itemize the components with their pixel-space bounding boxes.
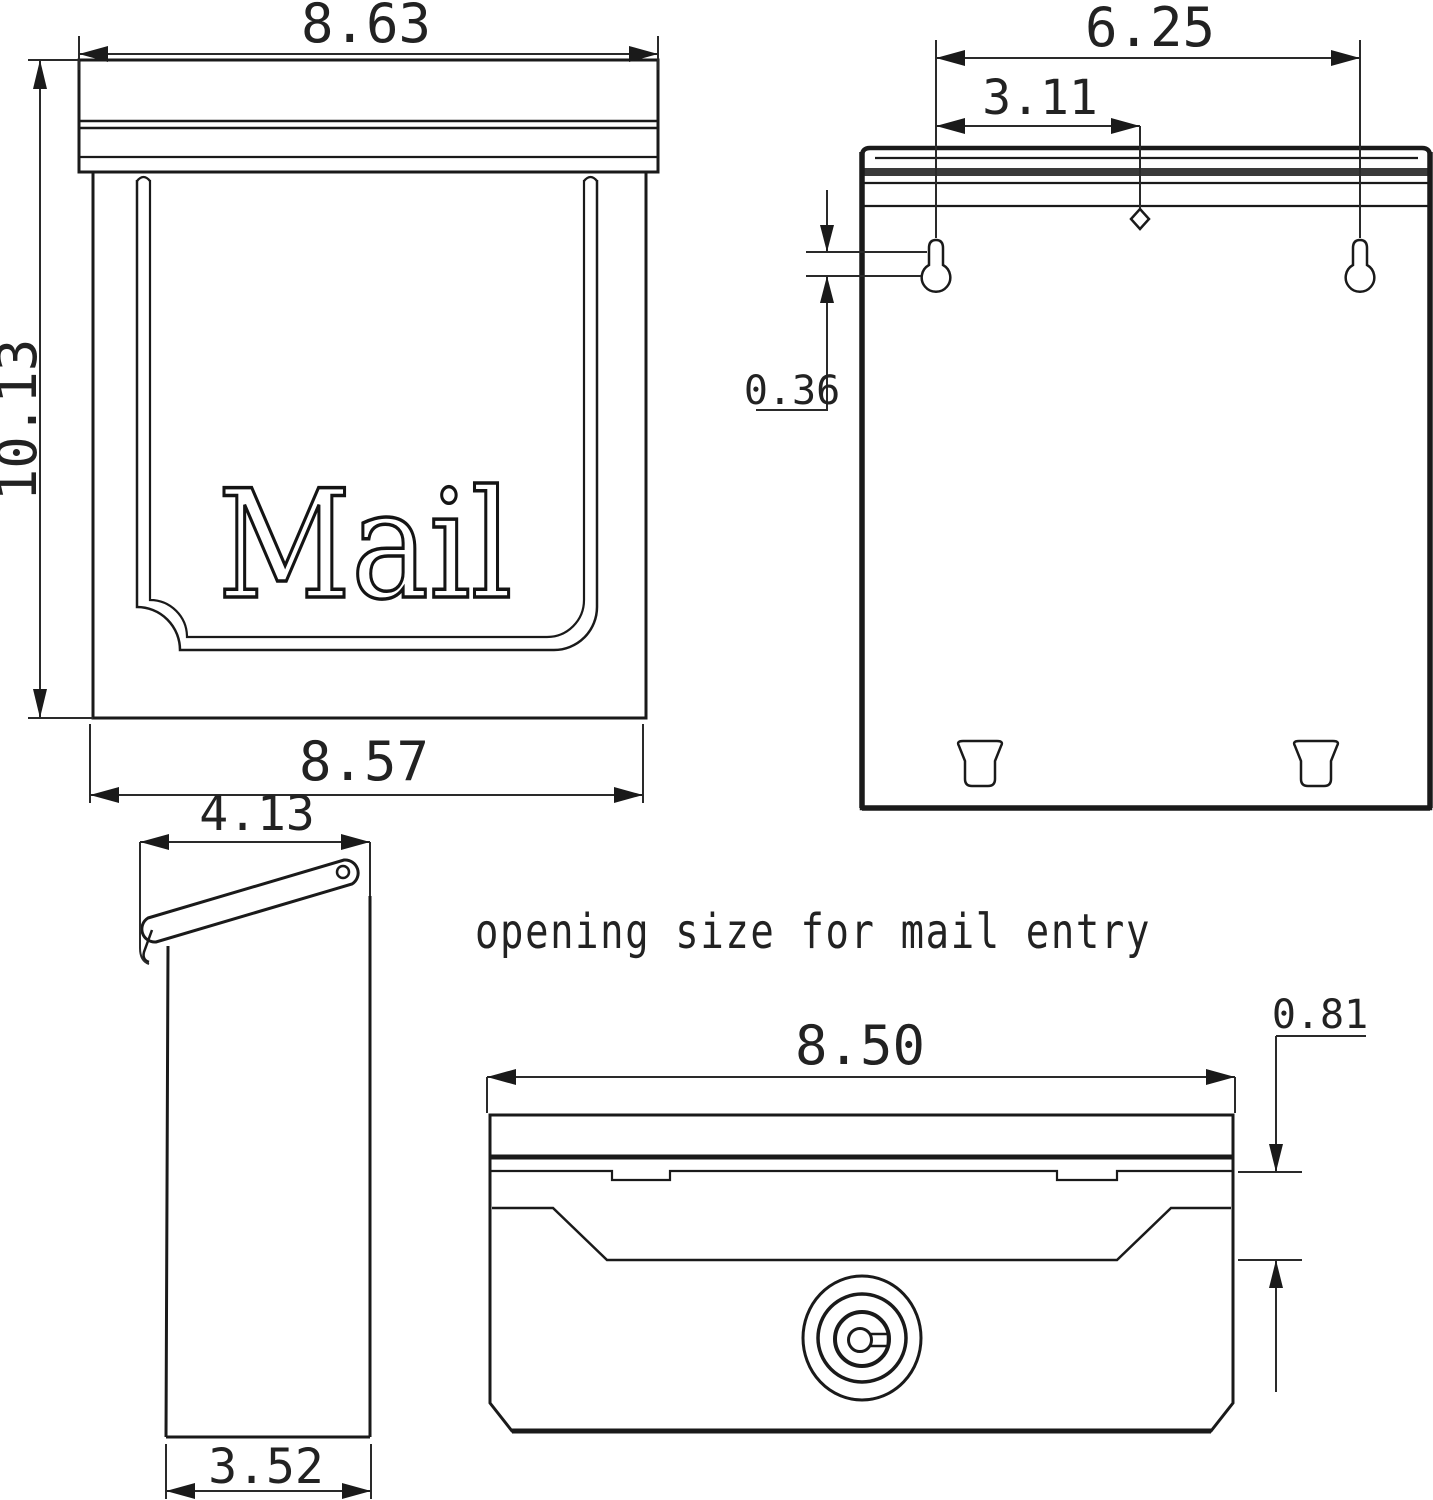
front-view: Mail 8.63 10.13 8.57	[0, 0, 658, 803]
opening-width-arrow-right	[1206, 1069, 1235, 1085]
opening-annotation: opening size for mail entry	[475, 904, 1151, 960]
drawing-canvas: Mail 8.63 10.13 8.57	[0, 0, 1433, 1500]
opening-height-dim-lines	[1276, 1036, 1366, 1392]
lock-keyhole-circle	[849, 1329, 872, 1352]
side-view: 4.13 3.52	[140, 786, 371, 1499]
front-bottom-width-value: 8.57	[299, 730, 429, 793]
back-center-value: 3.11	[982, 70, 1098, 126]
bottom-tab-left	[958, 741, 1002, 786]
back-offset-arrow-up	[820, 276, 834, 303]
front-height-arrow-top	[33, 60, 47, 89]
side-bottom-arrow-right	[342, 1483, 371, 1499]
opening-width-extension-lines	[487, 1077, 1235, 1113]
side-top-arrow-right	[341, 834, 370, 850]
back-body-outline	[862, 148, 1430, 808]
back-offset-value: 0.36	[744, 368, 840, 414]
back-span-arrow-right	[1331, 50, 1360, 66]
back-span-value: 6.25	[1085, 0, 1215, 59]
side-open-lid-arm	[142, 860, 358, 942]
front-bottom-arrow-right	[614, 787, 643, 803]
opening-height-arrow-up	[1269, 1260, 1283, 1288]
opening-height-arrow-down	[1269, 1144, 1283, 1172]
front-height-value: 10.13	[0, 339, 49, 502]
side-bottom-arrow-left	[166, 1483, 195, 1499]
bottom-tab-right	[1294, 741, 1338, 786]
front-lid-outline	[79, 60, 658, 172]
front-bottom-arrow-left	[90, 787, 119, 803]
front-height-arrow-bottom	[33, 689, 47, 718]
side-bottom-depth-value: 3.52	[208, 1439, 324, 1495]
opening-width-value: 8.50	[795, 1014, 925, 1077]
back-span-arrow-left	[936, 50, 965, 66]
opening-height-extension-lines	[1238, 1172, 1302, 1260]
back-center-arrow-left	[936, 118, 965, 134]
mail-embossed-label: Mail	[218, 459, 513, 633]
opening-width-arrow-left	[487, 1069, 516, 1085]
opening-height-value: 0.81	[1272, 992, 1368, 1038]
side-top-arrow-left	[140, 834, 169, 850]
back-center-arrow-right	[1111, 118, 1140, 134]
side-pivot-hole	[337, 866, 349, 878]
opening-view: opening size for mail entry 8.50 0.81	[475, 904, 1368, 1431]
side-body-outline	[166, 896, 370, 1437]
side-top-depth-value: 4.13	[199, 786, 315, 842]
front-top-width-value: 8.63	[301, 0, 431, 55]
back-offset-arrow-down	[820, 225, 834, 252]
back-view: 6.25 3.11 0.36	[744, 0, 1430, 808]
mailbox-dimension-drawing: Mail 8.63 10.13 8.57	[0, 0, 1433, 1500]
